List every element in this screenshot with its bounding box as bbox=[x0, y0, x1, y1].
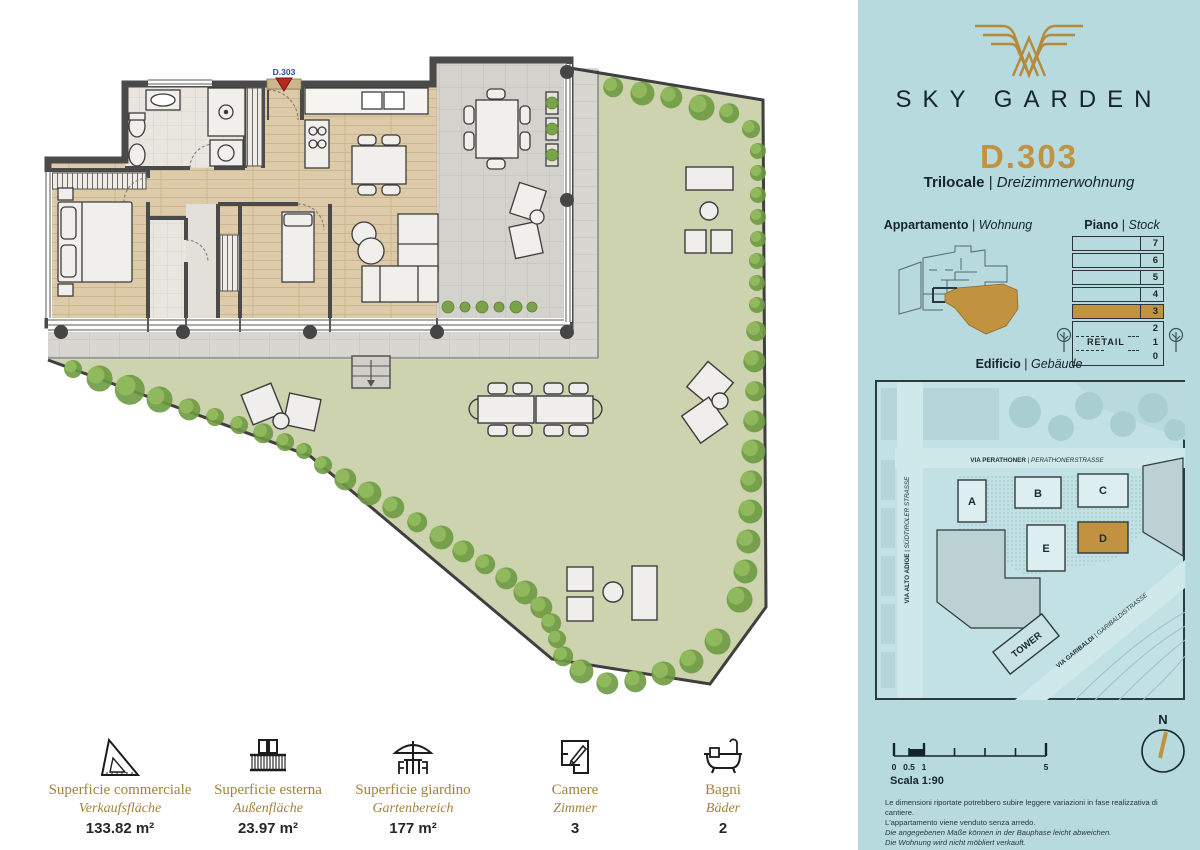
unit-type-de: Dreizimmerwohnung bbox=[997, 174, 1135, 191]
stat-rooms: Camere Zimmer 3 bbox=[490, 734, 660, 837]
edificio-section-label: Edificio | Gebäude bbox=[949, 357, 1109, 371]
garden-table-icon bbox=[390, 734, 436, 780]
garden-stair bbox=[352, 356, 390, 388]
north-indicator: N bbox=[1133, 712, 1193, 780]
floor-plan-drawing: D.303 bbox=[0, 0, 858, 850]
apartment: D.303 bbox=[44, 60, 574, 339]
unit-type-it: Trilocale bbox=[924, 174, 985, 191]
apartment-section-label: Appartamento | Wohnung bbox=[878, 218, 1038, 232]
minimap-unit-highlight bbox=[945, 284, 1018, 334]
bathroom-2-floor bbox=[148, 218, 186, 325]
piano-section-label: Piano | Stock bbox=[1072, 218, 1172, 232]
sky-garden-logo-icon bbox=[969, 18, 1089, 82]
bathtub-icon bbox=[700, 734, 746, 780]
floor-stack: 7 6 5 4 3 2 1 0 RETAIL bbox=[1072, 236, 1164, 366]
stat-commercial-area: Superficie commerciale Verkaufsfläche 13… bbox=[35, 734, 205, 837]
building-label-B: B bbox=[1034, 488, 1042, 500]
brand-name: SKY GARDEN bbox=[858, 86, 1200, 114]
floor-row-6: 6 bbox=[1072, 253, 1164, 268]
floor-row-3-highlighted: 3 bbox=[1072, 304, 1164, 319]
building-label-C: C bbox=[1099, 485, 1107, 497]
unit-marker-label: D.303 bbox=[273, 67, 296, 77]
rooms-plan-icon bbox=[552, 734, 598, 780]
building-label-D: D bbox=[1099, 533, 1107, 545]
street-label-alto-adige: VIA ALTO ADIGE | SÜDTIROLER STRASSE bbox=[903, 476, 911, 603]
scale-bar bbox=[890, 740, 1050, 760]
tree-icon bbox=[1168, 326, 1184, 352]
floor-row-5: 5 bbox=[1072, 270, 1164, 285]
street-label-perathoner: VIA PERATHONER | PERATHONERSTRASSE bbox=[970, 457, 1104, 464]
tree-icon bbox=[1056, 326, 1072, 352]
disclaimer-text: Le dimensioni riportate potrebbero subir… bbox=[885, 798, 1175, 848]
building-label-E: E bbox=[1042, 543, 1049, 555]
north-compass-icon bbox=[1139, 727, 1187, 775]
retail-label: RETAIL bbox=[1087, 337, 1125, 347]
stat-garden-area: Superficie giardino Gartenbereich 177 m² bbox=[328, 734, 498, 837]
floor-row-4: 4 bbox=[1072, 287, 1164, 302]
set-square-icon bbox=[97, 734, 143, 780]
north-label: N bbox=[1133, 712, 1193, 727]
corridor-floor bbox=[186, 204, 218, 325]
info-sidebar: SKY GARDEN D.303 Trilocale | Dreizimmerw… bbox=[858, 0, 1200, 850]
site-plan-map: A B C D E TOWER VIA PERATHONER | PERATHO… bbox=[875, 380, 1185, 700]
brochure-page: D.303 SKY GARDEN D.303 Trilocale | Dreiz… bbox=[0, 0, 1200, 850]
building-label-A: A bbox=[968, 496, 976, 508]
unit-code: D.303 bbox=[858, 138, 1200, 176]
scale-label: Scala 1:90 bbox=[890, 775, 944, 787]
balcony-icon bbox=[245, 734, 291, 780]
stat-bathrooms: Bagni Bäder 2 bbox=[638, 734, 808, 837]
unit-type-line: Trilocale | Dreizimmerwohnung bbox=[858, 174, 1200, 191]
floor-row-7: 7 bbox=[1072, 236, 1164, 251]
apartment-position-minimap bbox=[885, 236, 1037, 346]
